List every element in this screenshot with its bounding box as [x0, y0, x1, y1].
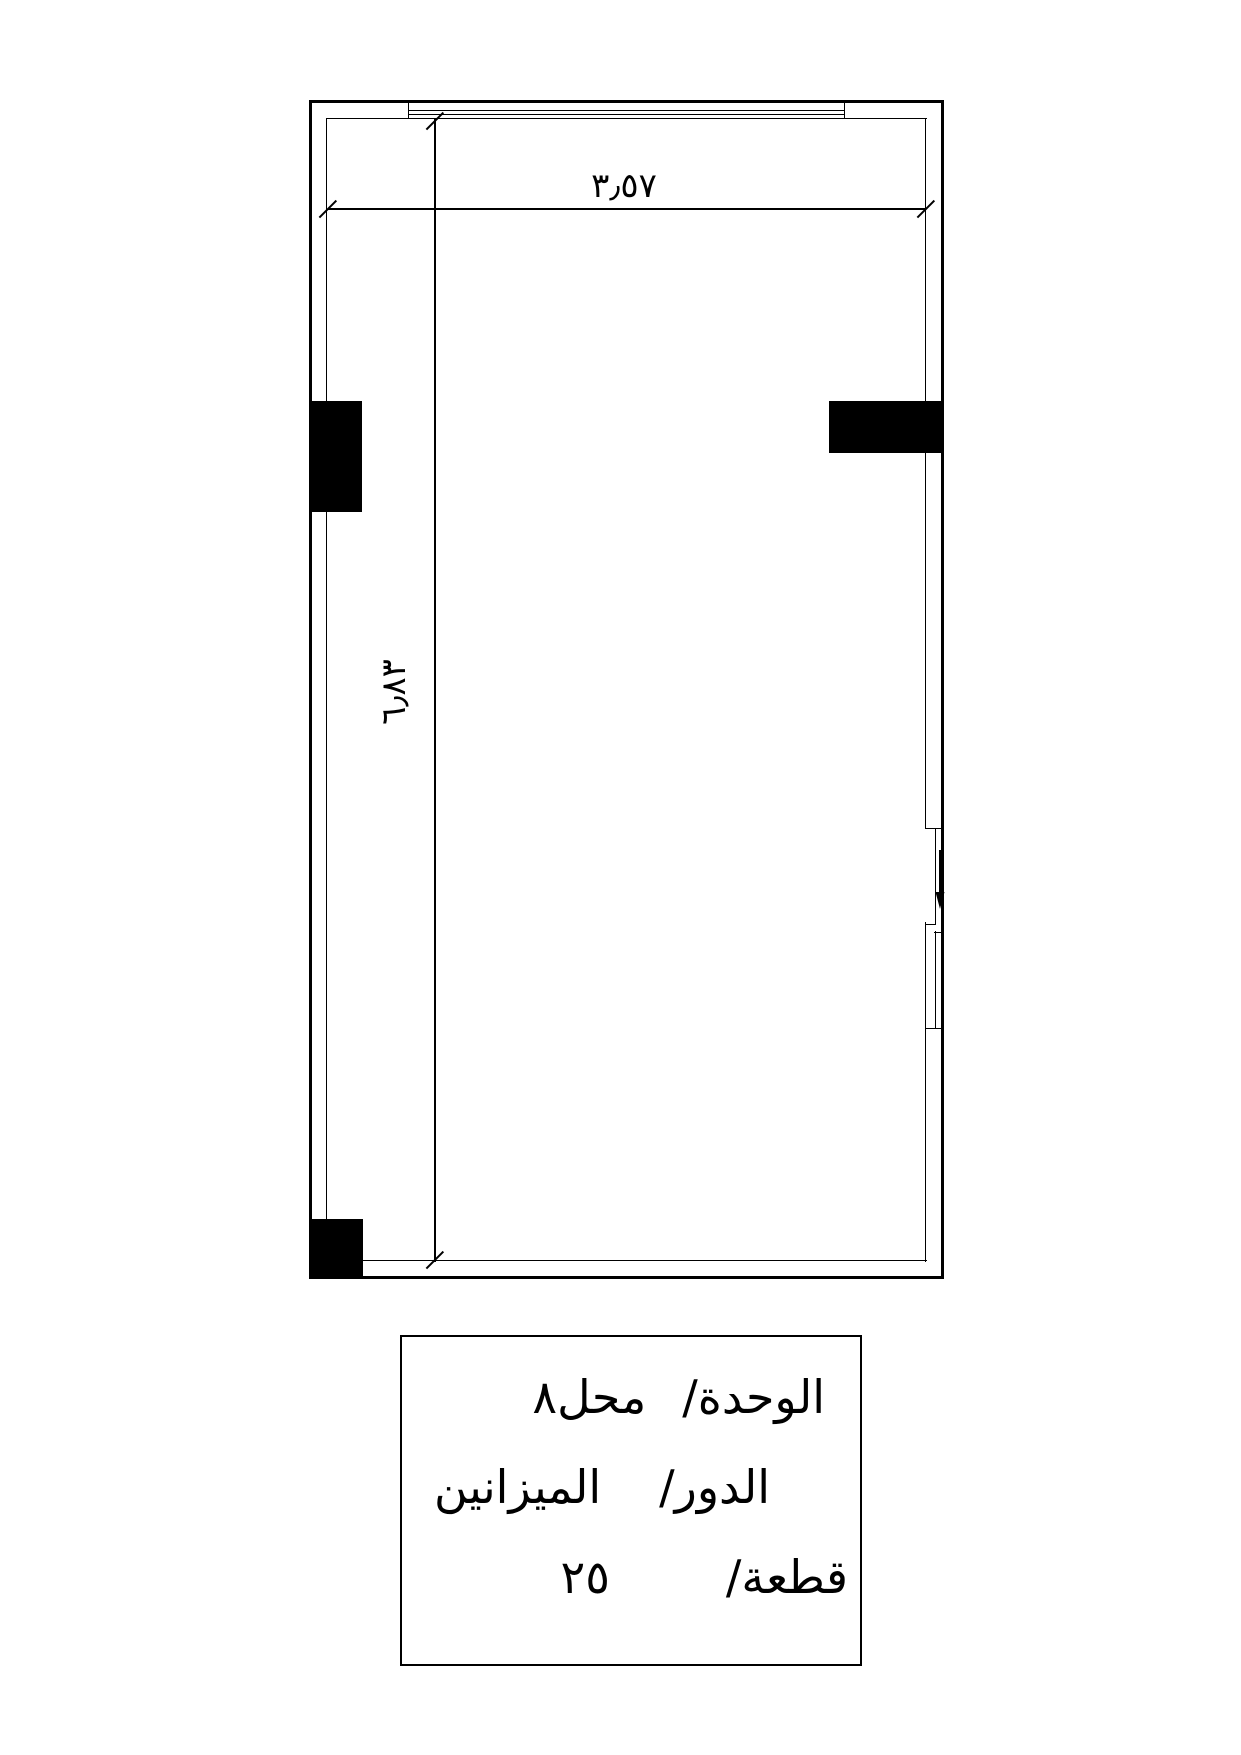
title-row-floor: الدور/ الميزانين — [402, 1455, 860, 1519]
title-row-plot: قطعة/ ٢٥ — [402, 1545, 860, 1609]
door-panel-line — [935, 931, 936, 1029]
inner-wall-line-right-lower — [925, 922, 926, 1262]
column-left-top — [309, 401, 362, 512]
floor-value: الميزانين — [434, 1455, 601, 1519]
storefront-window-inner-line — [408, 114, 845, 115]
column-right-top — [829, 401, 944, 453]
window-jamb-right — [844, 103, 845, 118]
unit-value: محل٨ — [532, 1365, 646, 1429]
floor-plan-drawing: ٣٫٥٧ ٦٫٨٣ الوحدة/ محل٨ الدور/ الميزانين … — [0, 0, 1241, 1755]
column-left-bottom — [310, 1219, 363, 1279]
title-row-unit: الوحدة/ محل٨ — [402, 1365, 860, 1429]
height-dimension-line — [434, 118, 436, 1262]
inner-wall-line-top — [326, 118, 927, 119]
entry-direction-arrow-icon — [933, 849, 947, 911]
plot-value: ٢٥ — [561, 1545, 610, 1609]
inner-wall-line-left — [326, 118, 327, 1262]
title-block: الوحدة/ محل٨ الدور/ الميزانين قطعة/ ٢٥ — [400, 1335, 862, 1666]
height-dimension-label: ٦٫٨٣ — [374, 632, 414, 752]
inner-wall-line-right-upper — [925, 118, 926, 829]
width-dimension-line — [328, 208, 926, 210]
width-dimension-label: ٣٫٥٧ — [524, 166, 724, 206]
plot-label: قطعة/ — [726, 1545, 848, 1609]
unit-label: الوحدة/ — [682, 1365, 825, 1429]
door-recess-cap-inner — [925, 924, 936, 925]
inner-wall-line-bottom — [326, 1260, 927, 1261]
window-jamb-left — [408, 103, 409, 118]
storefront-window — [408, 102, 845, 111]
floor-label: الدور/ — [659, 1455, 770, 1519]
door-panel-cap-bottom — [925, 1028, 943, 1029]
